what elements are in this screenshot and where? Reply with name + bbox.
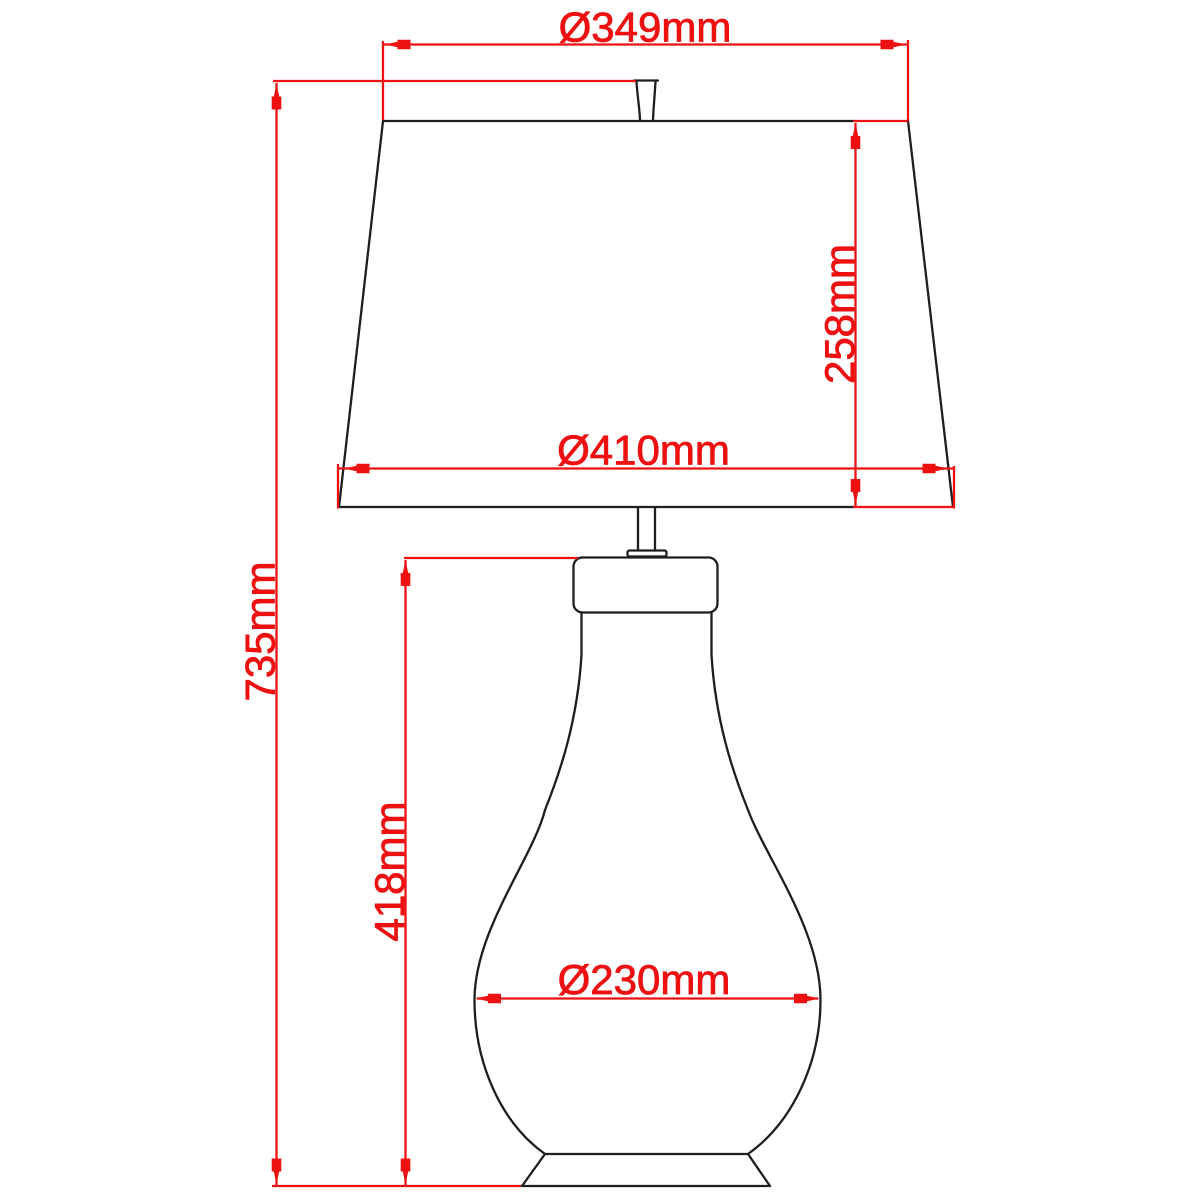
svg-text:418mm: 418mm: [366, 801, 413, 941]
svg-text:Ø230mm: Ø230mm: [558, 956, 731, 1003]
svg-text:Ø410mm: Ø410mm: [557, 427, 730, 474]
svg-text:735mm: 735mm: [237, 561, 284, 701]
svg-text:Ø349mm: Ø349mm: [559, 4, 732, 51]
svg-text:258mm: 258mm: [816, 244, 863, 384]
